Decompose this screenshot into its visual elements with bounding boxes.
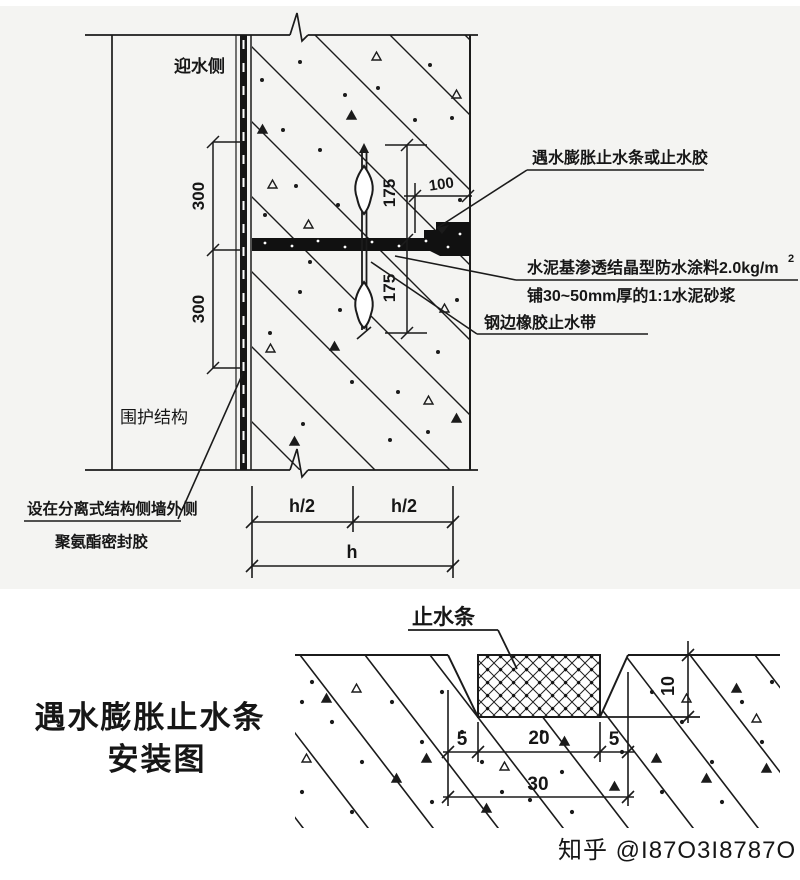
dim-5-left: 5 bbox=[457, 729, 468, 750]
annotation-sealant-line2: 聚氨酯密封胶 bbox=[54, 532, 149, 551]
dim-175-upper: 175 bbox=[380, 179, 399, 207]
annotation-mortar-label: 铺30~50mm厚的1:1水泥砂浆 bbox=[527, 286, 737, 305]
dim-300-lower: 300 bbox=[189, 295, 208, 323]
watermark: 知乎 @I87O3I8787O bbox=[558, 837, 796, 864]
dim-300-upper: 300 bbox=[189, 182, 208, 210]
annotation-cement-coating-label: 水泥基渗透结晶型防水涂料2.0kg/m bbox=[527, 258, 779, 277]
dim-100-label: 100 bbox=[428, 174, 455, 194]
annotation-cement-coating-sup: 2 bbox=[788, 253, 794, 265]
dim-h-half-left: h/2 bbox=[289, 496, 315, 516]
dim-30: 30 bbox=[527, 774, 548, 795]
annotation-sealant-line1: 设在分离式结构侧墙外侧 bbox=[27, 499, 198, 518]
dim-5-right: 5 bbox=[609, 729, 620, 750]
dim-175-lower: 175 bbox=[380, 274, 399, 302]
groove-structure bbox=[295, 655, 780, 717]
retaining-structure-label: 围护结构 bbox=[120, 408, 188, 427]
waterstop-strip-section bbox=[478, 655, 600, 717]
caption-line2: 安装图 bbox=[108, 742, 207, 777]
dim-10: 10 bbox=[658, 676, 678, 696]
dim-h-half-right: h/2 bbox=[391, 496, 417, 516]
strip-label: 止水条 bbox=[412, 605, 476, 629]
waterside-label: 迎水侧 bbox=[174, 56, 225, 76]
caption-line1: 遇水膨胀止水条 bbox=[35, 700, 266, 735]
waterstop-detail-drawing: 300 300 175 175 100 遇水膨胀止水条或止水胶 水泥基渗透结晶型… bbox=[0, 0, 800, 880]
dim-20: 20 bbox=[528, 728, 549, 749]
annotation-swelling-strip-label: 遇水膨胀止水条或止水胶 bbox=[532, 148, 708, 167]
annotation-steel-edge-label: 钢边橡胶止水带 bbox=[484, 313, 596, 332]
drawing-sheet: 300 300 175 175 100 遇水膨胀止水条或止水胶 水泥基渗透结晶型… bbox=[0, 0, 800, 880]
dim-h-total: h bbox=[347, 542, 358, 562]
